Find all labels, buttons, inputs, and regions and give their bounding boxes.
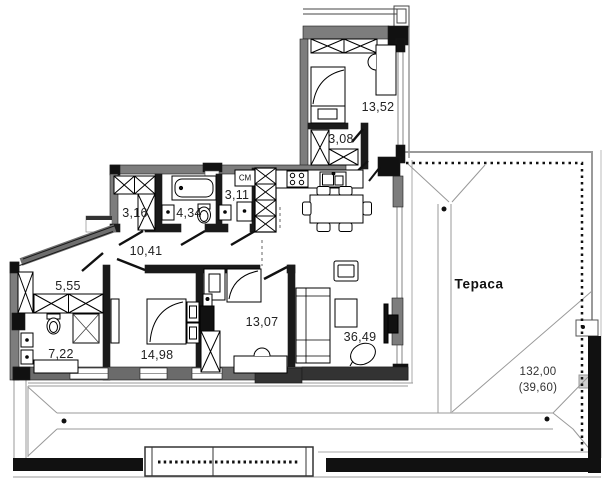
- terrace-label: Тераса: [454, 277, 503, 292]
- bed: [227, 269, 261, 302]
- desk: [234, 356, 287, 373]
- terrace-column-dot: [442, 207, 447, 212]
- floor-plan-drawing: [0, 0, 610, 480]
- entrance-column: [378, 157, 400, 176]
- chair: [254, 348, 270, 356]
- chair: [368, 54, 376, 70]
- media-unit: [200, 306, 214, 331]
- shelf: [111, 299, 119, 343]
- area-label-closet: 3,08: [328, 132, 354, 146]
- area-label-wardrobe-room: 3,16: [122, 206, 148, 220]
- window: [398, 52, 403, 145]
- area-label-bathroom: 4,34: [176, 206, 202, 220]
- area-label-bedroom-top: 13,52: [362, 100, 395, 114]
- window: [397, 207, 402, 298]
- area-label-living-kitchen: 36,49: [344, 330, 377, 344]
- vanity-counter: [34, 360, 78, 373]
- sofa: [296, 288, 330, 363]
- washing-machine-label: СМ: [239, 174, 251, 183]
- floor-plan: 13,52 3,08 3,16 4,34 3,11 10,41 5,55 7,2…: [0, 0, 610, 480]
- area-label-bathroom-2: 7,22: [48, 347, 74, 361]
- terrace-railing: [406, 163, 582, 452]
- toilet: [47, 314, 60, 334]
- roof-area-label: 132,00 (39,60): [519, 365, 558, 397]
- roof-secondary-area: (39,60): [519, 381, 558, 397]
- wardrobe: [311, 39, 377, 53]
- dining-table: [310, 195, 363, 223]
- shelving-column: [255, 168, 276, 232]
- area-label-hallway: 10,41: [130, 244, 163, 258]
- wardrobe: [114, 176, 155, 230]
- balustrade: [145, 447, 313, 476]
- area-label-laundry: 3,11: [225, 188, 250, 202]
- armchair: [334, 261, 358, 281]
- area-label-corridor: 5,55: [55, 279, 81, 293]
- wardrobe: [201, 331, 220, 372]
- stove: [287, 171, 308, 187]
- furniture: [18, 39, 398, 373]
- bed: [311, 67, 345, 106]
- coffee-table: [335, 299, 357, 327]
- area-label-bedroom-middle: 13,07: [246, 315, 279, 329]
- bed: [147, 299, 186, 344]
- desk: [376, 45, 396, 95]
- bathtub: [172, 176, 216, 200]
- terrace-corner-column: [576, 320, 598, 336]
- shower: [73, 314, 99, 343]
- area-label-bedroom-left: 14,98: [141, 348, 174, 362]
- kitchen-sink: [320, 172, 346, 187]
- roof-total-area: 132,00: [519, 365, 558, 381]
